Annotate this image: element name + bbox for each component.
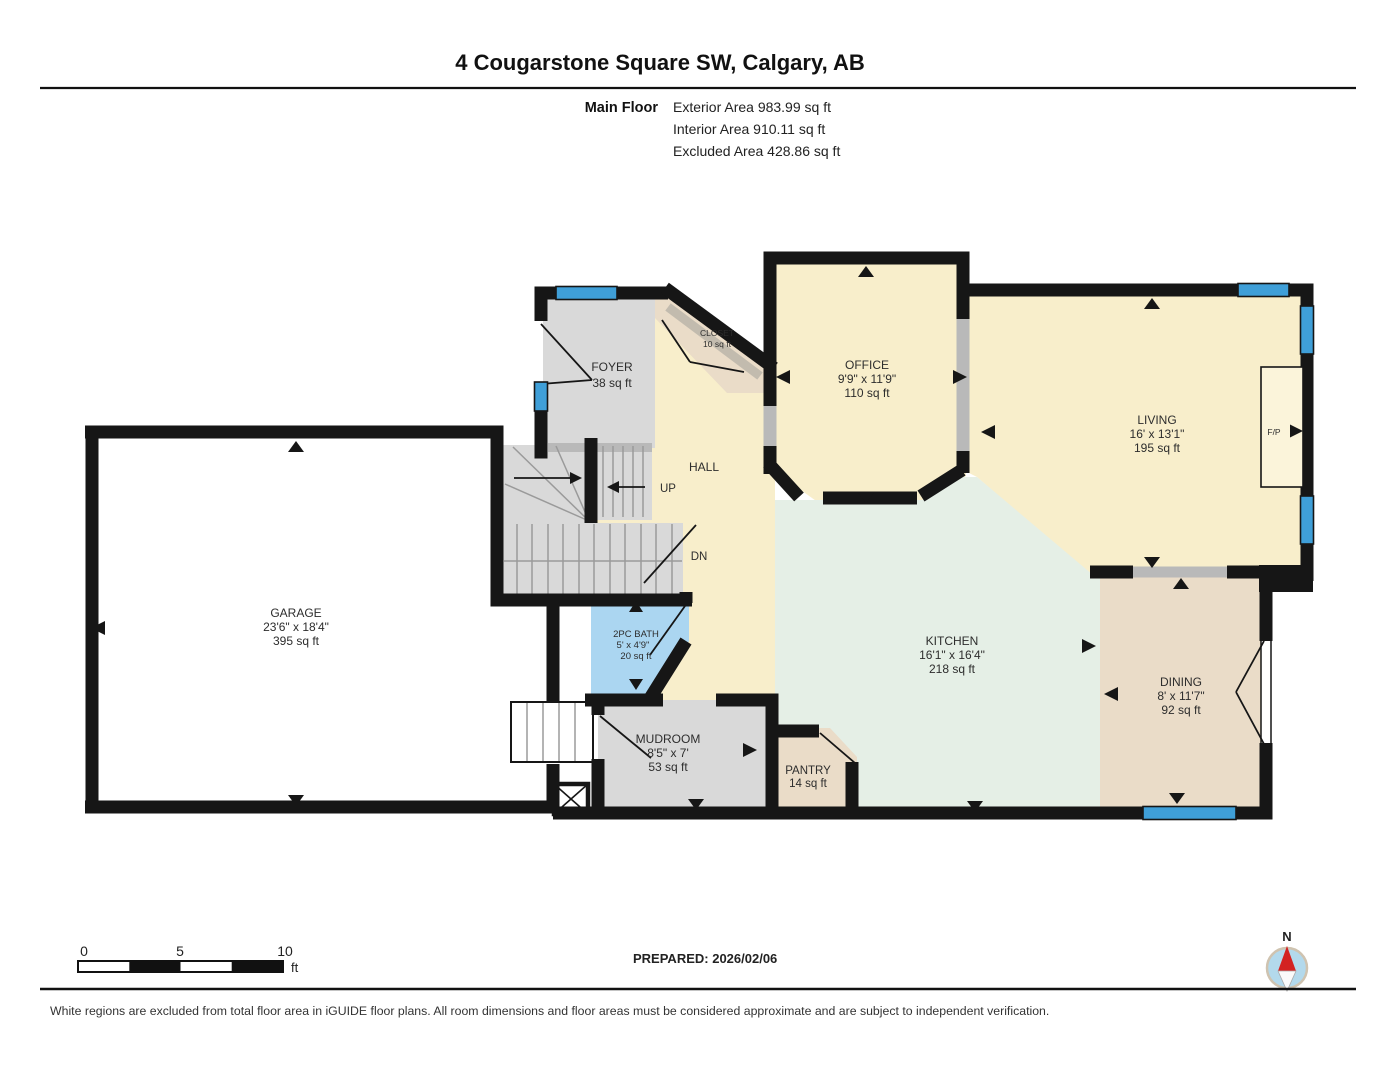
svg-text:218 sq ft: 218 sq ft bbox=[929, 662, 976, 676]
scale-bar-seg1 bbox=[129, 961, 180, 972]
prepared-date: PREPARED: 2026/02/06 bbox=[633, 951, 777, 966]
svg-text:9'9" x 11'9": 9'9" x 11'9" bbox=[838, 372, 896, 386]
stat-exterior: Exterior Area 983.99 sq ft bbox=[673, 99, 831, 115]
room-label-hall: HALL bbox=[689, 460, 719, 474]
svg-text:LIVING: LIVING bbox=[1137, 413, 1176, 427]
office-living-opening bbox=[957, 319, 970, 451]
svg-text:HALL: HALL bbox=[689, 460, 719, 474]
svg-text:8'5" x 7': 8'5" x 7' bbox=[647, 746, 689, 760]
svg-text:195 sq ft: 195 sq ft bbox=[1134, 441, 1181, 455]
svg-text:14 sq ft: 14 sq ft bbox=[789, 778, 828, 790]
room-label-closet: CLOSET 10 sq ft bbox=[700, 328, 734, 349]
stat-excluded: Excluded Area 428.86 sq ft bbox=[673, 143, 840, 159]
scale-tick-5: 5 bbox=[176, 943, 184, 959]
north-compass-icon: N bbox=[1267, 929, 1307, 991]
scale-bar: 0 5 10 ft bbox=[78, 943, 299, 975]
svg-text:110 sq ft: 110 sq ft bbox=[844, 386, 890, 400]
svg-text:PANTRY: PANTRY bbox=[785, 765, 831, 777]
dining-window bbox=[1143, 807, 1236, 820]
svg-text:2PC BATH: 2PC BATH bbox=[613, 629, 659, 640]
fireplace: F/P bbox=[1261, 367, 1303, 487]
office-door-opening bbox=[764, 406, 777, 446]
svg-text:DN: DN bbox=[691, 551, 708, 563]
stair-label-down: DN bbox=[691, 551, 708, 563]
stair-label-up: UP bbox=[660, 483, 676, 495]
room-label-garage: GARAGE 23'6" x 18'4" 395 sq ft bbox=[263, 606, 329, 648]
floorplan-canvas: 4 Cougarstone Square SW, Calgary, AB Mai… bbox=[0, 0, 1396, 1080]
svg-text:38 sq ft: 38 sq ft bbox=[592, 376, 632, 390]
room-label-pantry: PANTRY 14 sq ft bbox=[785, 765, 831, 790]
room-label-dining: DINING 8' x 11'7" 92 sq ft bbox=[1157, 675, 1204, 717]
svg-text:53 sq ft: 53 sq ft bbox=[648, 760, 688, 774]
svg-text:16'1" x 16'4": 16'1" x 16'4" bbox=[919, 648, 985, 662]
svg-text:MUDROOM: MUDROOM bbox=[636, 732, 701, 746]
garage-entry-steps bbox=[511, 702, 593, 762]
living-right-window-upper bbox=[1301, 306, 1314, 354]
floorplan-page: 4 Cougarstone Square SW, Calgary, AB Mai… bbox=[0, 0, 1396, 1080]
room-label-office: OFFICE 9'9" x 11'9" 110 sq ft bbox=[838, 358, 896, 400]
fireplace-label: F/P bbox=[1267, 427, 1281, 437]
svg-text:10 sq ft: 10 sq ft bbox=[703, 339, 732, 349]
page-title: 4 Cougarstone Square SW, Calgary, AB bbox=[455, 50, 865, 75]
svg-text:16' x 13'1": 16' x 13'1" bbox=[1130, 427, 1185, 441]
living-top-window bbox=[1238, 284, 1289, 297]
svg-text:92 sq ft: 92 sq ft bbox=[1161, 703, 1201, 717]
north-label: N bbox=[1282, 929, 1291, 944]
svg-text:CLOSET: CLOSET bbox=[700, 328, 734, 338]
scale-unit: ft bbox=[291, 960, 299, 975]
svg-text:5' x 4'9": 5' x 4'9" bbox=[617, 640, 650, 651]
svg-text:KITCHEN: KITCHEN bbox=[926, 634, 979, 648]
living-dining-opening bbox=[1133, 567, 1227, 578]
svg-text:FOYER: FOYER bbox=[591, 360, 633, 374]
stat-interior: Interior Area 910.11 sq ft bbox=[673, 121, 825, 137]
svg-text:DINING: DINING bbox=[1160, 675, 1202, 689]
disclaimer-text: White regions are excluded from total fl… bbox=[50, 1004, 1049, 1018]
foyer-sidelight-window bbox=[535, 382, 548, 411]
svg-text:UP: UP bbox=[660, 483, 676, 495]
svg-text:395 sq ft: 395 sq ft bbox=[273, 634, 320, 648]
foyer-window bbox=[556, 287, 617, 300]
svg-text:OFFICE: OFFICE bbox=[845, 358, 889, 372]
floor-label: Main Floor bbox=[585, 100, 659, 116]
svg-text:23'6" x 18'4": 23'6" x 18'4" bbox=[263, 620, 329, 634]
svg-text:8' x 11'7": 8' x 11'7" bbox=[1157, 689, 1204, 703]
svg-text:20 sq ft: 20 sq ft bbox=[620, 651, 652, 662]
foyer-threshold bbox=[548, 443, 652, 452]
room-label-living: LIVING 16' x 13'1" 195 sq ft bbox=[1130, 413, 1185, 455]
scale-tick-0: 0 bbox=[80, 943, 88, 959]
svg-text:GARAGE: GARAGE bbox=[270, 606, 321, 620]
footer: White regions are excluded from total fl… bbox=[40, 989, 1356, 1018]
scale-tick-10: 10 bbox=[277, 943, 293, 959]
header: 4 Cougarstone Square SW, Calgary, AB Mai… bbox=[40, 50, 1356, 159]
scale-bar-seg2 bbox=[232, 961, 283, 972]
living-right-window-lower bbox=[1301, 496, 1314, 544]
